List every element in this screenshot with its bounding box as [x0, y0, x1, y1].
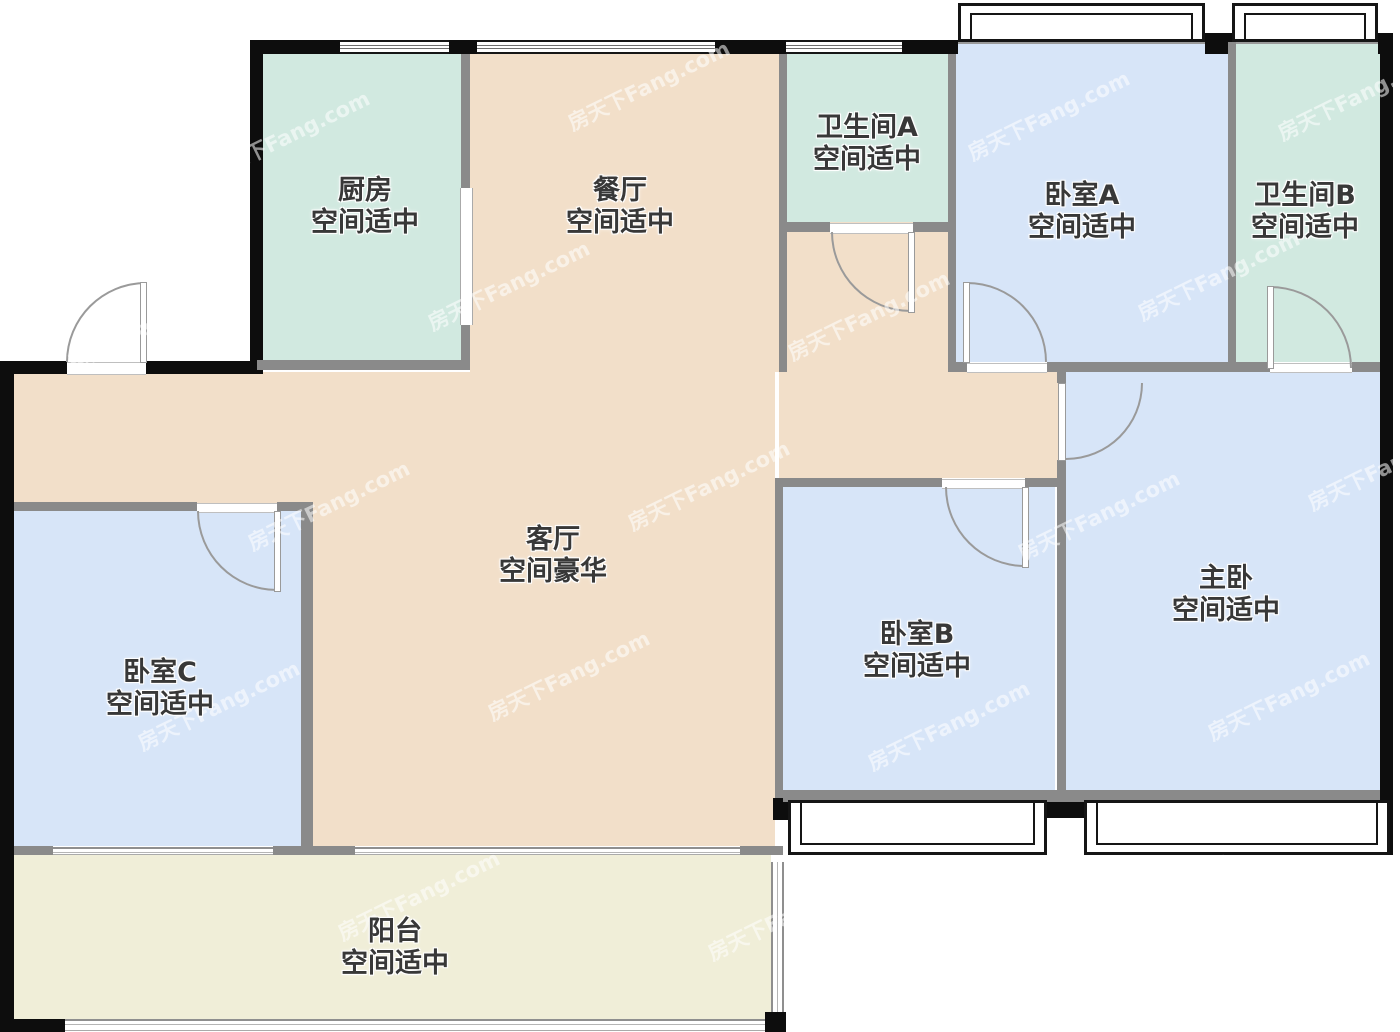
bay-window-inner — [970, 13, 1193, 41]
label-bedroom-b: 卧室B 空间适中 — [863, 619, 971, 683]
wall-mid-3 — [1352, 362, 1380, 372]
room-name: 卫生间B — [1251, 180, 1359, 212]
bay-window-inner — [1244, 13, 1366, 41]
wall-mid-1 — [948, 362, 967, 372]
wall-bathroom-a-left — [779, 54, 787, 372]
wall-entry-left — [14, 361, 67, 374]
wall-bedroom-b-top-right — [1025, 478, 1058, 487]
room-quality: 空间适中 — [1028, 212, 1136, 244]
door-leaf-bedroom-a — [963, 282, 970, 363]
wall-kitchen-right-upper — [461, 54, 470, 188]
room-quality: 空间适中 — [813, 144, 921, 176]
room-name: 卧室C — [106, 657, 214, 689]
room-quality: 空间适中 — [311, 207, 419, 239]
floorplan: 厨房 空间适中 餐厅 空间适中 卫生间A 空间适中 卧室A 空间适中 卫生间B … — [0, 0, 1400, 1032]
door-leaf-bedroom-b — [1022, 487, 1029, 568]
window-balcony-inner-2 — [355, 847, 740, 855]
wall-exterior-right — [1380, 40, 1393, 855]
room-quality: 空间适中 — [1172, 595, 1280, 627]
label-bathroom-a: 卫生间A 空间适中 — [813, 112, 921, 176]
wall-balcony-3 — [740, 846, 783, 855]
room-quality: 空间适中 — [863, 651, 971, 683]
watermark: 房天下Fang.com — [1062, 843, 1234, 948]
room-name: 卫生间A — [813, 112, 921, 144]
door-leaf-master — [1058, 383, 1066, 461]
bay-window-bathroom-b — [1232, 3, 1378, 42]
bay-window-master — [1084, 800, 1390, 855]
label-bedroom-a: 卧室A 空间适中 — [1028, 180, 1136, 244]
label-dining: 餐厅 空间适中 — [566, 175, 674, 239]
wall-bathroom-b-west — [1228, 42, 1236, 362]
wall-exterior — [902, 40, 958, 54]
wall-bedroom-a-west — [948, 54, 956, 372]
wall-master-west-lower — [1057, 460, 1066, 798]
window-balcony-bottom — [65, 1019, 765, 1031]
window-top-kitchen — [340, 40, 449, 54]
room-name: 餐厅 — [566, 175, 674, 207]
wall-bottom-left — [0, 1019, 65, 1032]
room-quality: 空间适中 — [566, 207, 674, 239]
label-kitchen: 厨房 空间适中 — [311, 175, 419, 239]
room-quality: 空间适中 — [106, 689, 214, 721]
door-leaf-bathroom-a — [908, 232, 915, 313]
bay-window-bedroom-a — [958, 3, 1205, 42]
threshold-entry — [67, 362, 146, 375]
wall-master-west-upper — [1057, 362, 1066, 383]
wall-bedroom-b-west — [775, 478, 783, 798]
room-name: 卧室B — [863, 619, 971, 651]
threshold-bedroom-a — [967, 363, 1047, 373]
bay-window-bedroom-b — [788, 800, 1047, 855]
window-balcony-inner-1 — [53, 847, 273, 855]
wall-balcony-2 — [273, 846, 355, 855]
door-arc-entry — [66, 282, 146, 362]
room-name: 客厅 — [499, 524, 607, 556]
door-leaf-entry — [140, 282, 147, 363]
wall-bedroom-c-right — [301, 502, 313, 855]
wall-exterior — [715, 40, 786, 54]
wall-mid-2 — [1047, 362, 1270, 372]
wall-bedroom-b-top-left — [775, 478, 942, 487]
room-quality: 空间适中 — [1251, 212, 1359, 244]
bay-window-inner — [800, 801, 1035, 845]
wall-kitchen-bottom — [257, 360, 470, 370]
room-quality: 空间豪华 — [499, 556, 607, 588]
bay-window-inner — [1096, 801, 1378, 845]
label-living: 客厅 空间豪华 — [499, 524, 607, 588]
wall-exterior-left — [0, 361, 14, 1032]
post-between-bays — [1047, 800, 1084, 818]
room-name: 卧室A — [1028, 180, 1136, 212]
room-name: 厨房 — [311, 175, 419, 207]
wall-bathroom-a-bottom-left — [779, 222, 830, 232]
wall-exterior — [250, 40, 340, 54]
wall-exterior — [449, 40, 477, 54]
window-top-bathroom-a — [786, 40, 902, 54]
room-quality: 空间适中 — [341, 948, 449, 980]
label-bathroom-b: 卫生间B 空间适中 — [1251, 180, 1359, 244]
room-name: 主卧 — [1172, 563, 1280, 595]
wall-entry-right — [146, 361, 263, 374]
corridor-horizontal — [779, 372, 1058, 478]
wall-bedroom-c-top-left — [14, 502, 197, 511]
wall-balcony-1 — [14, 846, 53, 855]
opening-kitchen — [460, 188, 473, 325]
door-leaf-bedroom-c — [274, 511, 281, 592]
window-top-dining — [477, 40, 715, 54]
post-bottom-right — [765, 1012, 786, 1032]
label-bedroom-c: 卧室C 空间适中 — [106, 657, 214, 721]
label-balcony: 阳台 空间适中 — [341, 916, 449, 980]
window-balcony-right — [771, 862, 784, 1012]
room-name: 阳台 — [341, 916, 449, 948]
label-master: 主卧 空间适中 — [1172, 563, 1280, 627]
wall-kitchen-left — [250, 40, 263, 374]
door-leaf-bathroom-b — [1267, 286, 1274, 369]
wall-kitchen-right-lower — [461, 325, 470, 370]
